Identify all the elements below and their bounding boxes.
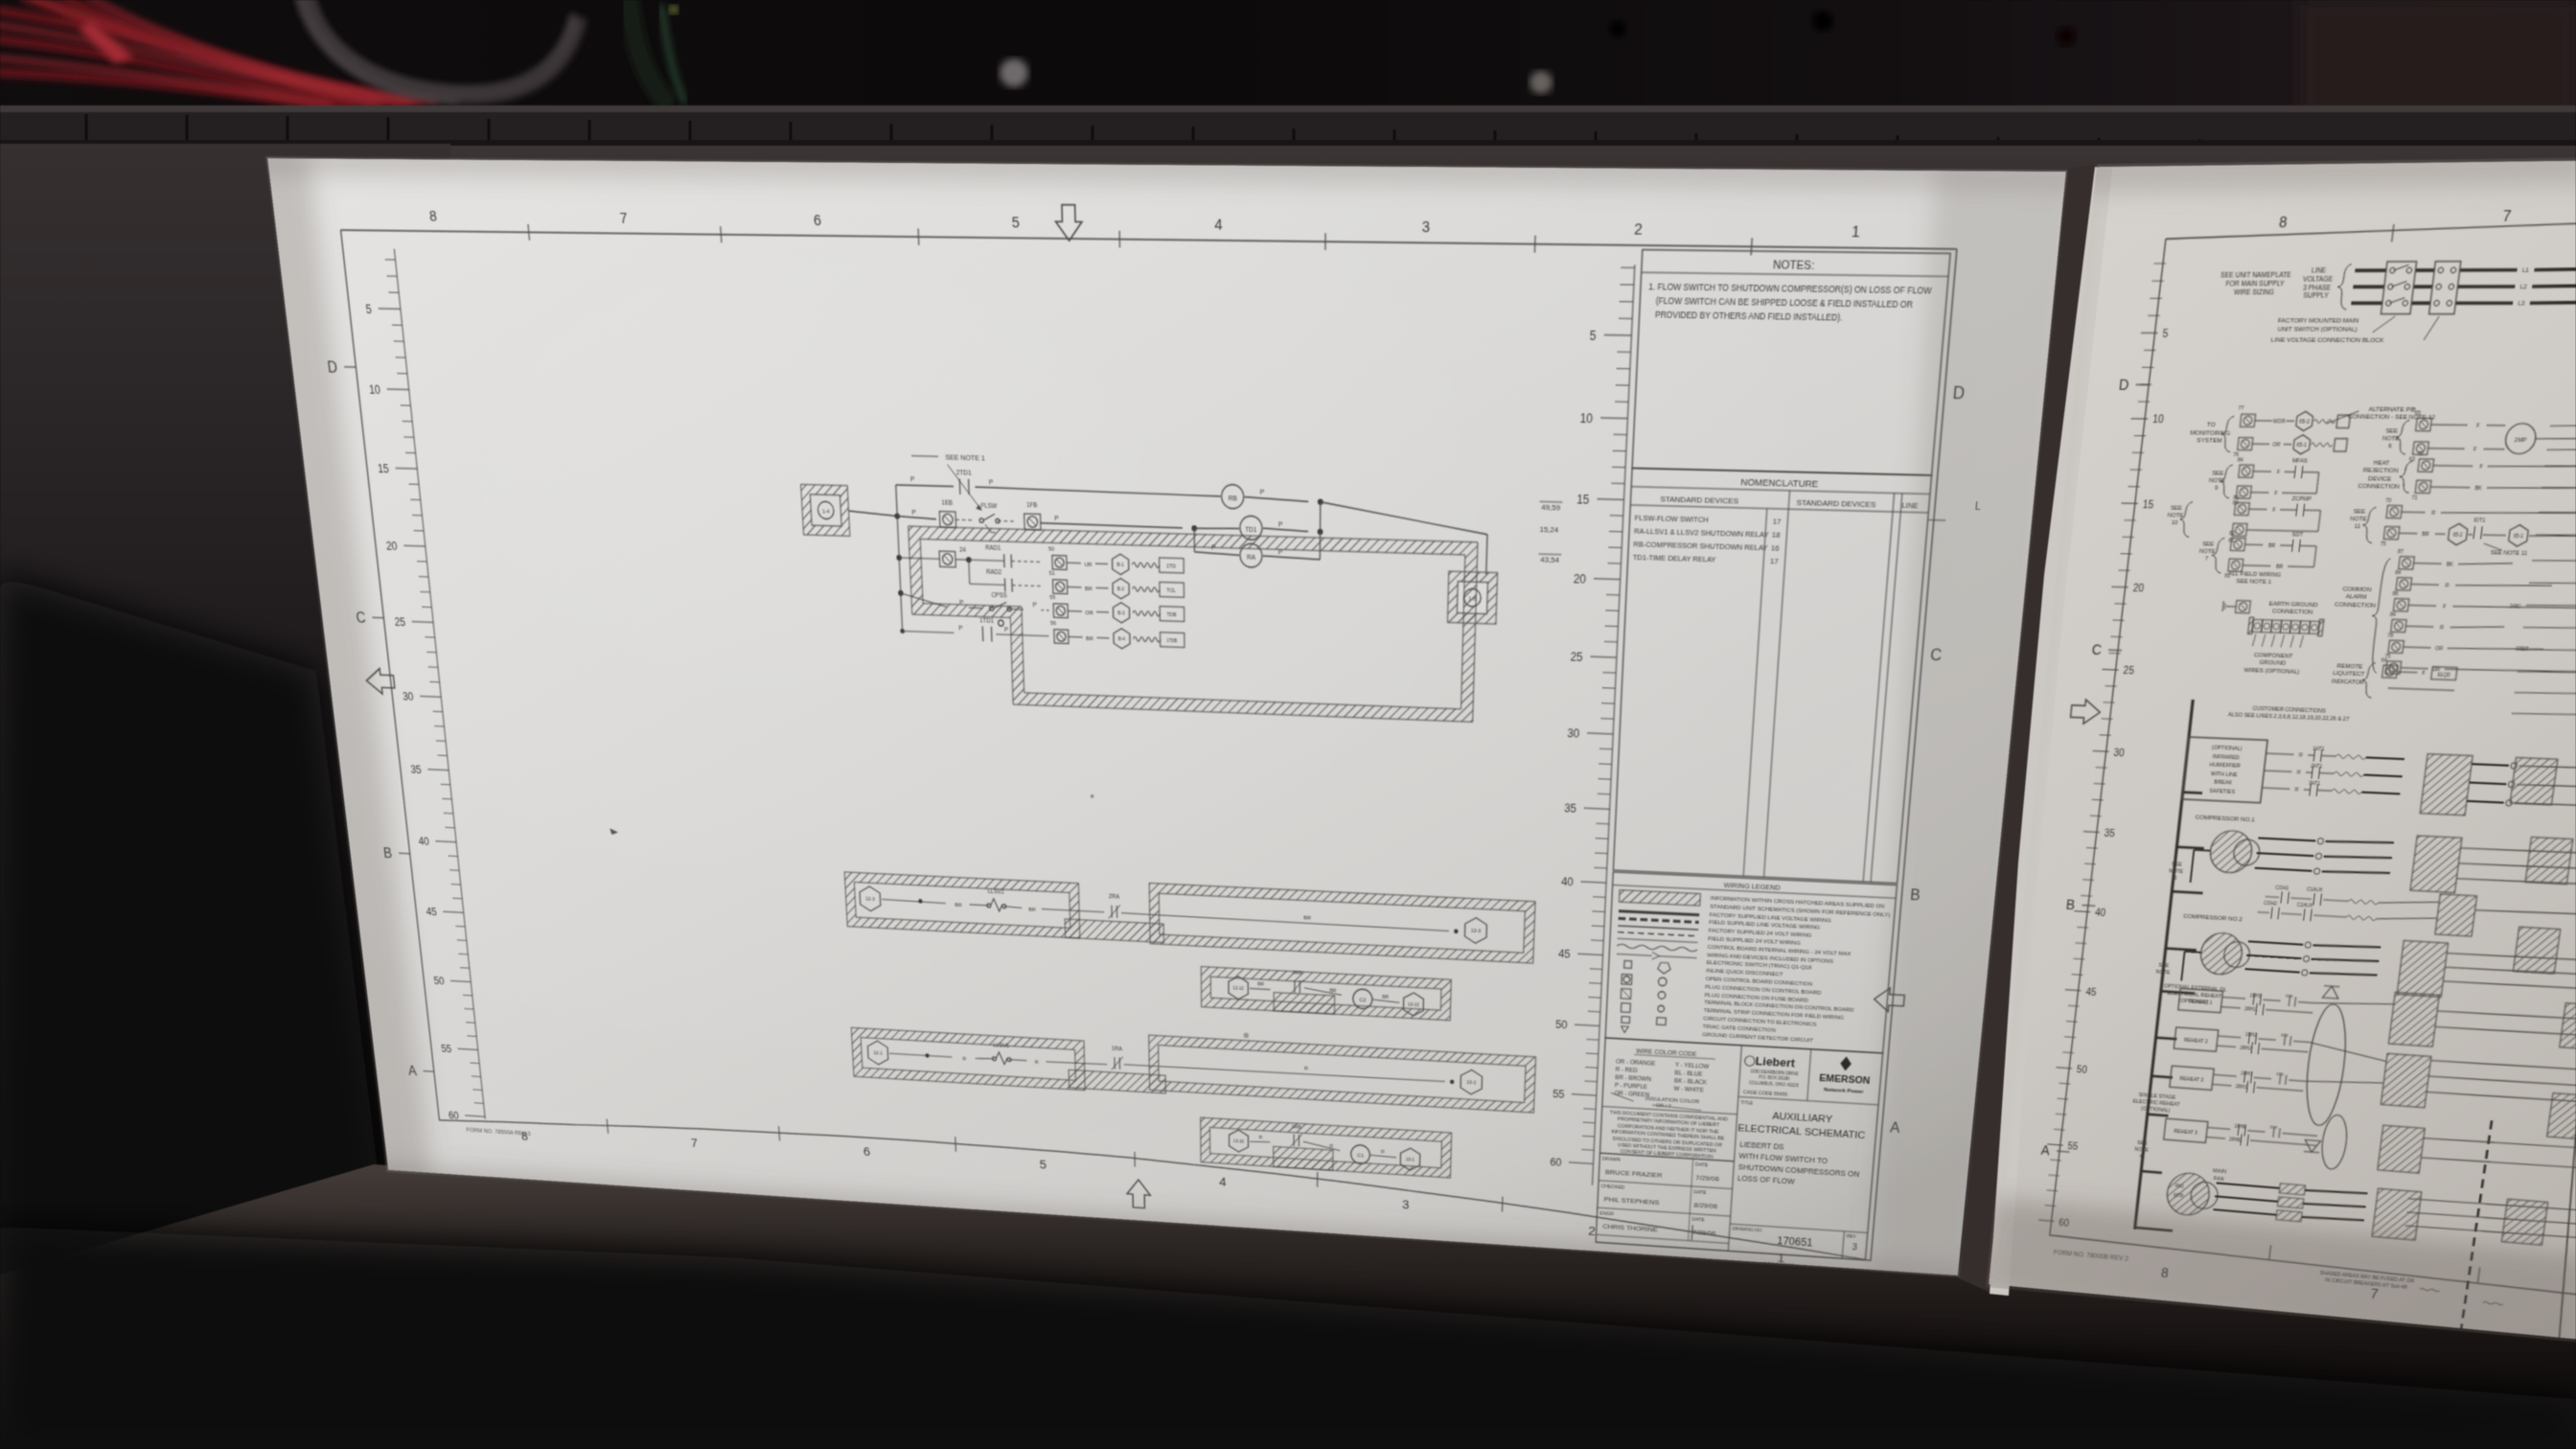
svg-text:B-3: B-3 — [1117, 610, 1125, 616]
svg-text:LINE VOLTAGE CONNECTION BLOCK: LINE VOLTAGE CONNECTION BLOCK — [2270, 336, 2385, 344]
svg-text:2RHE: 2RHE — [2229, 1137, 2242, 1142]
svg-text:10-1: 10-1 — [1406, 1157, 1414, 1162]
svg-text:NOTE: NOTE — [2134, 1146, 2150, 1153]
svg-text:HEAT: HEAT — [2373, 460, 2390, 467]
svg-text:55: 55 — [1552, 1088, 1565, 1101]
svg-text:25: 25 — [2123, 666, 2135, 678]
svg-text:EARTH GROUND: EARTH GROUND — [2268, 601, 2318, 609]
svg-text:86: 86 — [2392, 591, 2399, 598]
svg-text:RA: RA — [1247, 554, 1256, 561]
svg-text:SEE: SEE — [2170, 505, 2182, 512]
svg-text:2: 2 — [1588, 1224, 1596, 1238]
svg-text:50: 50 — [2076, 1065, 2087, 1076]
svg-text:30: 30 — [402, 690, 414, 703]
svg-text:40: 40 — [1561, 875, 1575, 888]
svg-text:MFAS: MFAS — [2292, 458, 2309, 465]
svg-text:1RH2: 1RH2 — [2245, 1032, 2258, 1038]
svg-text:2RH3: 2RH3 — [2235, 1084, 2247, 1090]
svg-text:B: B — [2065, 896, 2076, 912]
svg-text:BR: BR — [2276, 564, 2284, 571]
svg-text:B-2: B-2 — [1117, 586, 1125, 592]
svg-text:P: P — [958, 626, 962, 632]
svg-text:R: R — [1329, 1144, 1333, 1150]
svg-text:82: 82 — [2229, 531, 2236, 538]
svg-text:2RH2: 2RH2 — [2240, 1046, 2252, 1051]
svg-text:C1AUX: C1AUX — [2307, 886, 2324, 893]
svg-text:LINE: LINE — [1901, 500, 1919, 510]
svg-text:R - RED: R - RED — [1616, 1067, 1638, 1074]
svg-text:2MP: 2MP — [2514, 438, 2527, 445]
svg-text:75: 75 — [2380, 541, 2386, 548]
svg-text:NOTES:: NOTES: — [1773, 259, 1815, 272]
svg-text:TD1: TD1 — [1246, 527, 1257, 535]
svg-text:50: 50 — [433, 975, 446, 987]
svg-text:SUPPLY: SUPPLY — [2303, 292, 2330, 300]
svg-text:18: 18 — [1772, 530, 1781, 540]
svg-text:DATE: DATE — [1693, 1190, 1707, 1196]
svg-text:1FB: 1FB — [1026, 502, 1037, 510]
svg-text:TCL: TCL — [1166, 588, 1176, 594]
svg-text:TITLE: TITLE — [1740, 1100, 1754, 1106]
svg-text:ERDT: ERDT — [2516, 646, 2529, 652]
svg-text:CONNECTION: CONNECTION — [2272, 609, 2313, 617]
svg-text:170651: 170651 — [1777, 1234, 1813, 1249]
svg-text:15: 15 — [1576, 493, 1590, 507]
svg-text:R: R — [1304, 1067, 1309, 1072]
svg-text:FACTORY MOUNTED MAIN: FACTORY MOUNTED MAIN — [2277, 317, 2359, 325]
svg-text:COH1: COH1 — [2275, 885, 2289, 892]
svg-text:L2: L2 — [2519, 285, 2527, 291]
svg-text:P: P — [1004, 627, 1008, 633]
svg-text:NOTE: NOTE — [2167, 513, 2183, 519]
svg-text:BR: BR — [954, 903, 962, 908]
svg-text:LINE: LINE — [2311, 267, 2326, 275]
svg-text:STANDARD DEVICES: STANDARD DEVICES — [1660, 494, 1738, 506]
svg-text:87: 87 — [2398, 549, 2404, 556]
svg-text:2RB: 2RB — [1292, 971, 1302, 977]
svg-text:RB: RB — [1229, 495, 1238, 503]
svg-text:ELQD: ELQD — [2437, 672, 2451, 678]
svg-text:18B: 18B — [2276, 1071, 2284, 1077]
svg-text:BR: BR — [1028, 908, 1036, 913]
svg-text:SEE: SEE — [2137, 1140, 2149, 1147]
svg-text:45: 45 — [425, 906, 438, 918]
svg-text:(OPTIONAL): (OPTIONAL) — [2212, 745, 2243, 752]
svg-text:INDICATOR: INDICATOR — [2331, 678, 2365, 686]
svg-text:ALARM: ALARM — [2345, 594, 2367, 601]
svg-text:SEE NOTE 11: SEE NOTE 11 — [2490, 550, 2527, 558]
svg-text:35: 35 — [410, 763, 423, 775]
svg-text:55: 55 — [1049, 595, 1056, 601]
svg-text:CPSS: CPSS — [991, 592, 1007, 600]
svg-text:L3: L3 — [2518, 301, 2525, 308]
svg-text:2TD1: 2TD1 — [956, 470, 972, 477]
svg-text:C2: C2 — [1359, 998, 1367, 1003]
svg-text:2A5C: 2A5C — [2509, 604, 2522, 609]
svg-text:1TD1: 1TD1 — [979, 617, 994, 624]
svg-text:DEVICE: DEVICE — [2368, 476, 2392, 483]
svg-text:9: 9 — [2214, 486, 2218, 493]
svg-text:10: 10 — [2171, 520, 2177, 527]
svg-text:55: 55 — [2067, 1142, 2079, 1154]
svg-text:REV: REV — [1847, 1234, 1857, 1240]
svg-text:60: 60 — [1550, 1156, 1562, 1168]
svg-text:SEE NOTE 1: SEE NOTE 1 — [945, 452, 985, 462]
svg-text:P: P — [1278, 549, 1283, 556]
svg-text:SEE: SEE — [2202, 541, 2215, 548]
svg-text:SDT: SDT — [2291, 532, 2304, 539]
svg-text:10: 10 — [2152, 415, 2165, 426]
svg-text:13-10: 13-10 — [1233, 1138, 1244, 1144]
svg-text:L1: L1 — [2521, 267, 2529, 274]
svg-text:B-4: B-4 — [1118, 636, 1126, 642]
svg-text:84: 84 — [2389, 612, 2396, 619]
svg-text:D: D — [327, 359, 338, 377]
svg-text:7: 7 — [619, 210, 628, 227]
svg-text:40: 40 — [418, 835, 430, 847]
svg-text:35: 35 — [1564, 801, 1577, 815]
svg-text:43,54: 43,54 — [1540, 555, 1560, 564]
svg-text:CONNECTION: CONNECTION — [2334, 602, 2376, 609]
svg-text:13-3: 13-3 — [1471, 929, 1481, 934]
svg-text:70: 70 — [2417, 451, 2424, 458]
svg-text:3: 3 — [1422, 218, 1431, 236]
svg-text:P: P — [1033, 602, 1037, 609]
svg-text:10-13: 10-13 — [1408, 1002, 1419, 1008]
svg-text:WOR: WOR — [2272, 419, 2286, 425]
svg-text:SEE: SEE — [2353, 509, 2365, 516]
svg-text:12-1: 12-1 — [873, 1051, 883, 1057]
svg-text:17: 17 — [1773, 517, 1782, 526]
svg-text:7/29/06: 7/29/06 — [1695, 1174, 1720, 1184]
svg-text:BR: BR — [1085, 586, 1093, 592]
svg-text:IOT1: IOT1 — [2473, 517, 2486, 524]
svg-text:FLSW: FLSW — [981, 503, 999, 511]
svg-text:COMMON: COMMON — [2342, 586, 2371, 593]
svg-text:RAD2: RAD2 — [986, 569, 1002, 577]
svg-text:D: D — [2118, 376, 2129, 393]
svg-text:55: 55 — [441, 1043, 452, 1055]
svg-text:LLSV2: LLSV2 — [988, 888, 1005, 895]
svg-text:45: 45 — [2085, 987, 2098, 999]
svg-text:20: 20 — [1574, 572, 1587, 586]
svg-text:84: 84 — [2237, 457, 2243, 464]
svg-text:10: 10 — [1579, 411, 1593, 425]
svg-text:15: 15 — [2142, 499, 2154, 511]
svg-text:OR: OR — [2435, 646, 2444, 653]
svg-text:2: 2 — [1634, 220, 1644, 239]
svg-text:C: C — [1929, 647, 1942, 664]
svg-text:BREAK: BREAK — [2214, 780, 2233, 787]
svg-text:1TDB: 1TDB — [1166, 638, 1177, 643]
svg-text:REMOTE: REMOTE — [2336, 663, 2363, 670]
svg-text:DRAWN: DRAWN — [1602, 1157, 1621, 1163]
svg-text:3 PHASE: 3 PHASE — [2303, 285, 2332, 292]
svg-text:24: 24 — [959, 547, 966, 554]
svg-text:56: 56 — [1050, 621, 1057, 627]
svg-text:60: 60 — [448, 1110, 459, 1122]
svg-text:1RH1: 1RH1 — [2249, 993, 2262, 999]
svg-text:A: A — [1889, 1120, 1900, 1136]
svg-text:5: 5 — [1040, 1158, 1047, 1172]
svg-text:ENGR: ENGR — [1599, 1211, 1614, 1217]
svg-text:7/29/06: 7/29/06 — [1692, 1229, 1717, 1238]
svg-text:C1: C1 — [1357, 1154, 1365, 1160]
svg-text:WITH LINE: WITH LINE — [2210, 771, 2238, 779]
svg-text:BR: BR — [2422, 532, 2430, 539]
svg-text:P: P — [910, 476, 915, 483]
svg-text:NOTE: NOTE — [2169, 868, 2184, 875]
svg-text:SEE UNIT NAMEPLATE: SEE UNIT NAMEPLATE — [2220, 272, 2291, 280]
svg-text:D: D — [1952, 385, 1966, 403]
svg-text:P: P — [959, 600, 963, 607]
svg-text:COH2: COH2 — [2264, 901, 2278, 908]
svg-text:6: 6 — [863, 1144, 871, 1159]
svg-text:DATE: DATE — [1695, 1162, 1709, 1168]
svg-text:NOTE: NOTE — [2198, 549, 2215, 556]
svg-text:SYSTEM: SYSTEM — [2196, 437, 2222, 445]
svg-text:UNIT SWITCH (OPTIONAL): UNIT SWITCH (OPTIONAL) — [2277, 325, 2357, 333]
svg-text:70: 70 — [2385, 497, 2392, 504]
svg-text:DATE: DATE — [1691, 1217, 1705, 1223]
svg-text:ALTERNATE PIB: ALTERNATE PIB — [2368, 407, 2416, 414]
svg-text:18B: 18B — [2281, 1032, 2288, 1038]
svg-text:SEE NOTE 1: SEE NOTE 1 — [2236, 579, 2272, 586]
svg-text:GROUND: GROUND — [2259, 660, 2287, 667]
svg-text:NOMENCLATURE: NOMENCLATURE — [1740, 477, 1818, 491]
svg-text:71: 71 — [2411, 495, 2418, 502]
svg-text:BR: BR — [1303, 916, 1311, 922]
svg-text:2HT1: 2HT1 — [2311, 764, 2323, 770]
svg-text:B: B — [1909, 887, 1920, 904]
svg-text:4: 4 — [1214, 216, 1222, 234]
svg-text:P: P — [911, 510, 916, 517]
svg-text:12-3: 12-3 — [865, 897, 875, 903]
svg-text:COMPONENT: COMPONENT — [2254, 653, 2294, 660]
svg-text:84: 84 — [2395, 570, 2402, 577]
svg-text:5: 5 — [1012, 214, 1021, 232]
svg-text:ALL FIELD WIRING: ALL FIELD WIRING — [2228, 571, 2282, 579]
svg-text:RAD1: RAD1 — [985, 544, 1001, 552]
svg-text:MTR: MTR — [2173, 1193, 2184, 1199]
svg-text:20: 20 — [2132, 584, 2145, 595]
svg-text:45: 45 — [1558, 948, 1571, 961]
svg-text:17: 17 — [1770, 557, 1779, 566]
svg-text:VOLTAGE: VOLTAGE — [2302, 276, 2333, 284]
svg-text:65-2: 65-2 — [2452, 532, 2463, 538]
svg-text:OR: OR — [1085, 610, 1093, 616]
svg-text:30: 30 — [1567, 726, 1580, 741]
svg-text:B: B — [382, 846, 393, 862]
svg-text:C: C — [356, 610, 367, 627]
svg-text:P: P — [1278, 521, 1283, 528]
svg-text:10: 10 — [368, 383, 381, 398]
svg-text:77: 77 — [2238, 405, 2244, 412]
svg-text:R: R — [1381, 1150, 1385, 1156]
svg-text:4: 4 — [1219, 1175, 1226, 1189]
svg-text:LIQUITECT: LIQUITECT — [2333, 671, 2365, 678]
svg-text:C: C — [2091, 641, 2103, 657]
svg-text:P: P — [1054, 516, 1059, 522]
svg-text:18B: 18B — [2285, 993, 2292, 999]
svg-text:P: P — [1260, 490, 1265, 496]
svg-text:8/29/06: 8/29/06 — [1693, 1201, 1718, 1210]
svg-text:64: 64 — [2380, 657, 2387, 664]
svg-text:CONNECTION: CONNECTION — [2357, 484, 2400, 491]
svg-text:1RB: 1RB — [1292, 1125, 1301, 1131]
svg-text:SEE: SEE — [2172, 862, 2183, 868]
svg-text:LLSV1: LLSV1 — [993, 1043, 1010, 1049]
svg-text:1EB: 1EB — [941, 500, 953, 507]
svg-text:20: 20 — [385, 540, 398, 553]
svg-text:SEE: SEE — [2385, 428, 2398, 435]
svg-text:7: 7 — [2204, 557, 2208, 563]
svg-text:40: 40 — [2094, 908, 2106, 920]
svg-text:SEE: SEE — [2212, 471, 2224, 477]
svg-text:15,24: 15,24 — [1539, 525, 1559, 535]
svg-text:15: 15 — [377, 462, 389, 475]
svg-text:30: 30 — [2113, 747, 2126, 759]
svg-text:51: 51 — [1049, 571, 1056, 577]
svg-text:6: 6 — [814, 212, 822, 230]
svg-text:1RA: 1RA — [1112, 1046, 1123, 1052]
svg-text:3HT1: 3HT1 — [2309, 781, 2321, 788]
svg-text:BR: BR — [1382, 995, 1389, 1000]
svg-text:13101910: 13101910 — [1762, 1260, 1795, 1270]
svg-text:60: 60 — [2058, 1218, 2070, 1230]
svg-text:Liebert: Liebert — [1755, 1054, 1796, 1069]
svg-text:R: R — [1259, 1136, 1263, 1141]
svg-text:25: 25 — [1570, 650, 1583, 664]
svg-text:16: 16 — [1771, 543, 1780, 553]
svg-text:12-12: 12-12 — [1232, 986, 1244, 992]
svg-text:2RH1: 2RH1 — [2244, 1006, 2257, 1012]
svg-text:49,59: 49,59 — [1541, 502, 1561, 512]
svg-text:1-4: 1-4 — [822, 509, 830, 515]
svg-text:7: 7 — [690, 1136, 698, 1150]
svg-text:ZCPMP: ZCPMP — [2291, 496, 2311, 503]
svg-text:78: 78 — [2387, 632, 2394, 639]
svg-text:SEE: SEE — [2158, 963, 2170, 970]
svg-text:NOTE: NOTE — [2209, 478, 2226, 485]
svg-text:13-2: 13-2 — [1466, 1080, 1476, 1086]
svg-text:BR: BR — [1329, 988, 1336, 994]
svg-text:FAN: FAN — [2213, 1176, 2224, 1183]
svg-text:TDB: TDB — [1166, 612, 1177, 618]
svg-text:INFRARED: INFRARED — [2212, 754, 2240, 762]
svg-text:NOTE: NOTE — [2350, 517, 2367, 523]
svg-text:1TD: 1TD — [1166, 563, 1176, 569]
svg-text:MAIN: MAIN — [2213, 1168, 2227, 1175]
svg-text:FLSW-FLOW SWITCH: FLSW-FLOW SWITCH — [1634, 514, 1708, 525]
svg-text:WIRE SIZING: WIRE SIZING — [2233, 288, 2274, 296]
svg-text:SAFETIES: SAFETIES — [2209, 789, 2236, 796]
svg-text:BR: BR — [2268, 543, 2276, 550]
svg-text:65: 65 — [2414, 410, 2421, 417]
svg-text:1RH3: 1RH3 — [2241, 1070, 2253, 1076]
svg-text:BR: BR — [1257, 982, 1264, 988]
svg-text:OR: OR — [2272, 442, 2281, 448]
svg-text:25: 25 — [394, 615, 406, 629]
svg-text:TO: TO — [2206, 421, 2216, 428]
svg-text:50: 50 — [1555, 1018, 1568, 1031]
svg-text:B-1: B-1 — [1117, 563, 1125, 568]
svg-text:65-2: 65-2 — [2299, 419, 2311, 425]
svg-text:50: 50 — [1048, 546, 1055, 552]
svg-text:P: P — [989, 479, 994, 486]
svg-text:BR: BR — [1086, 636, 1093, 642]
svg-text:FOR MAIN SUPPLY: FOR MAIN SUPPLY — [2225, 280, 2286, 287]
svg-text:C2AUX: C2AUX — [2296, 903, 2313, 909]
svg-text:1RHE: 1RHE — [2234, 1124, 2246, 1130]
svg-text:11: 11 — [2354, 524, 2360, 531]
svg-text:65-1: 65-1 — [2514, 533, 2524, 539]
svg-text:NOTE: NOTE — [2155, 969, 2171, 976]
svg-text:FM1: FM1 — [2174, 1184, 2184, 1189]
svg-text:4: 4 — [2139, 1154, 2143, 1160]
svg-text:1SR: 1SR — [2269, 1124, 2278, 1130]
svg-text:REJECTION: REJECTION — [2362, 468, 2398, 474]
svg-text:80: 80 — [2233, 495, 2240, 502]
svg-text:UR: UR — [1084, 563, 1092, 568]
svg-text:5: 5 — [1589, 329, 1597, 344]
svg-text:1: 1 — [1851, 222, 1860, 241]
svg-text:65-1: 65-1 — [2296, 442, 2308, 448]
svg-text:2RA: 2RA — [1109, 893, 1120, 900]
svg-text:1HT1: 1HT1 — [2312, 747, 2325, 753]
svg-text:35: 35 — [2104, 829, 2116, 840]
svg-text:3: 3 — [1402, 1197, 1410, 1211]
